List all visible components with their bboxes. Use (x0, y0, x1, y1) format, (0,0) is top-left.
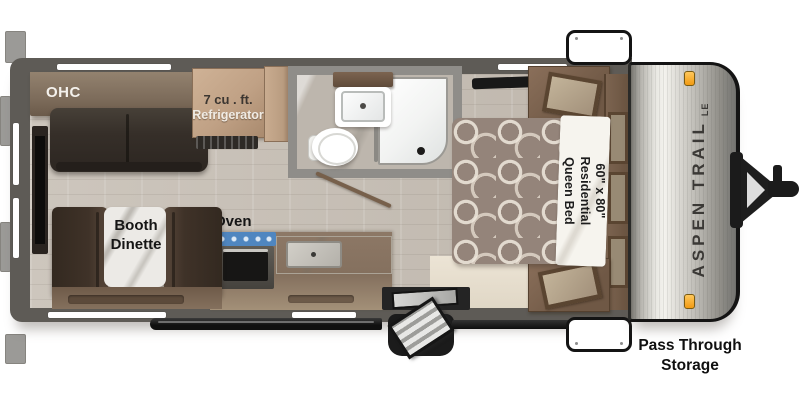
tv-screen (35, 136, 45, 244)
screw (620, 342, 623, 345)
window-rear-wall-upper (13, 123, 19, 185)
window-top-rear (57, 64, 171, 70)
pass-through-line1: Pass Through (630, 336, 750, 356)
stove-cooktop (214, 232, 276, 246)
bed-size: 60" x 80" (592, 115, 607, 267)
bed-label-text: 60" x 80" Residential Queen Bed (561, 115, 607, 267)
awning-tube (150, 318, 382, 330)
brand-logo: ASPEN TRAIL LE (686, 70, 712, 310)
pass-through-line2: Storage (630, 356, 750, 376)
bathroom-shelf (333, 72, 393, 87)
wardrobe-panel-2 (608, 172, 628, 224)
ohc-label: OHC (46, 84, 106, 101)
kitchen-sink-drain (311, 252, 316, 257)
oven-label: Oven (214, 213, 272, 230)
dinette-base-inset (68, 295, 184, 304)
sofa-cushion-seam (126, 114, 129, 166)
pass-through-door-top (566, 30, 632, 65)
bathroom-faucet (360, 103, 366, 109)
kitchen-drawer (288, 295, 354, 303)
awning-highlight (158, 321, 374, 323)
bed-name: Queen Bed (561, 115, 576, 267)
dinette-label-line2: Dinette (92, 236, 180, 253)
screw (620, 37, 623, 40)
toilet-seat (318, 133, 356, 165)
window-rear-wall-lower (13, 198, 19, 258)
pass-through-label: Pass Through Storage (630, 336, 750, 376)
screw (575, 342, 578, 345)
screw (575, 37, 578, 40)
front-cap (628, 62, 740, 322)
queen-bed (452, 118, 570, 264)
wardrobe-panel-1 (608, 112, 628, 164)
rear-corner-jack-bottom (5, 334, 26, 364)
brand-name: ASPEN TRAIL (689, 120, 709, 277)
dinette-label-line1: Booth (96, 217, 176, 234)
oven-door (223, 252, 268, 281)
refrigerator-size-label: 7 cu . ft. (192, 92, 264, 107)
wardrobe-panel-3 (608, 236, 628, 288)
frame-rail (452, 320, 570, 329)
refrigerator-label: Refrigerator (190, 108, 266, 122)
refrigerator-vent (196, 136, 258, 149)
hitch-coupler (768, 181, 799, 197)
sofa-front-edge (56, 162, 202, 171)
floorplan-diagram: OHC 7 cu . ft. Refrigerator Oven Booth D… (0, 0, 800, 400)
shower-drain (417, 147, 425, 155)
window-bottom-rear (48, 312, 166, 318)
brand-edition: LE (700, 103, 710, 117)
bed-type: Residential (577, 115, 592, 267)
pass-through-door-bottom (566, 317, 632, 352)
